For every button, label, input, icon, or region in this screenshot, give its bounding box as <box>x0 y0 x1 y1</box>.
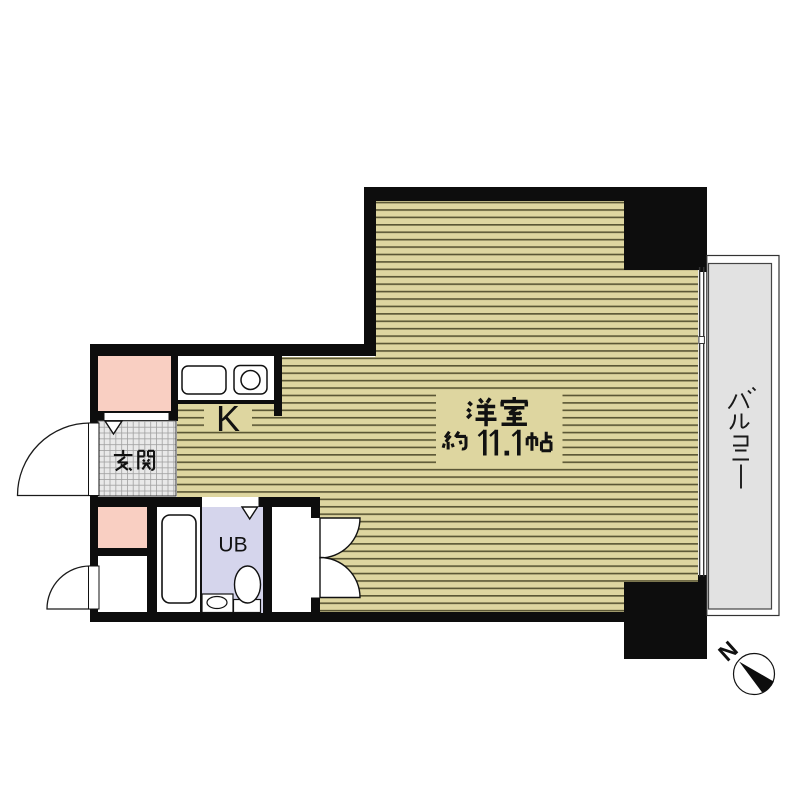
svg-text:UB: UB <box>218 534 247 557</box>
svg-text:K: K <box>216 398 240 439</box>
